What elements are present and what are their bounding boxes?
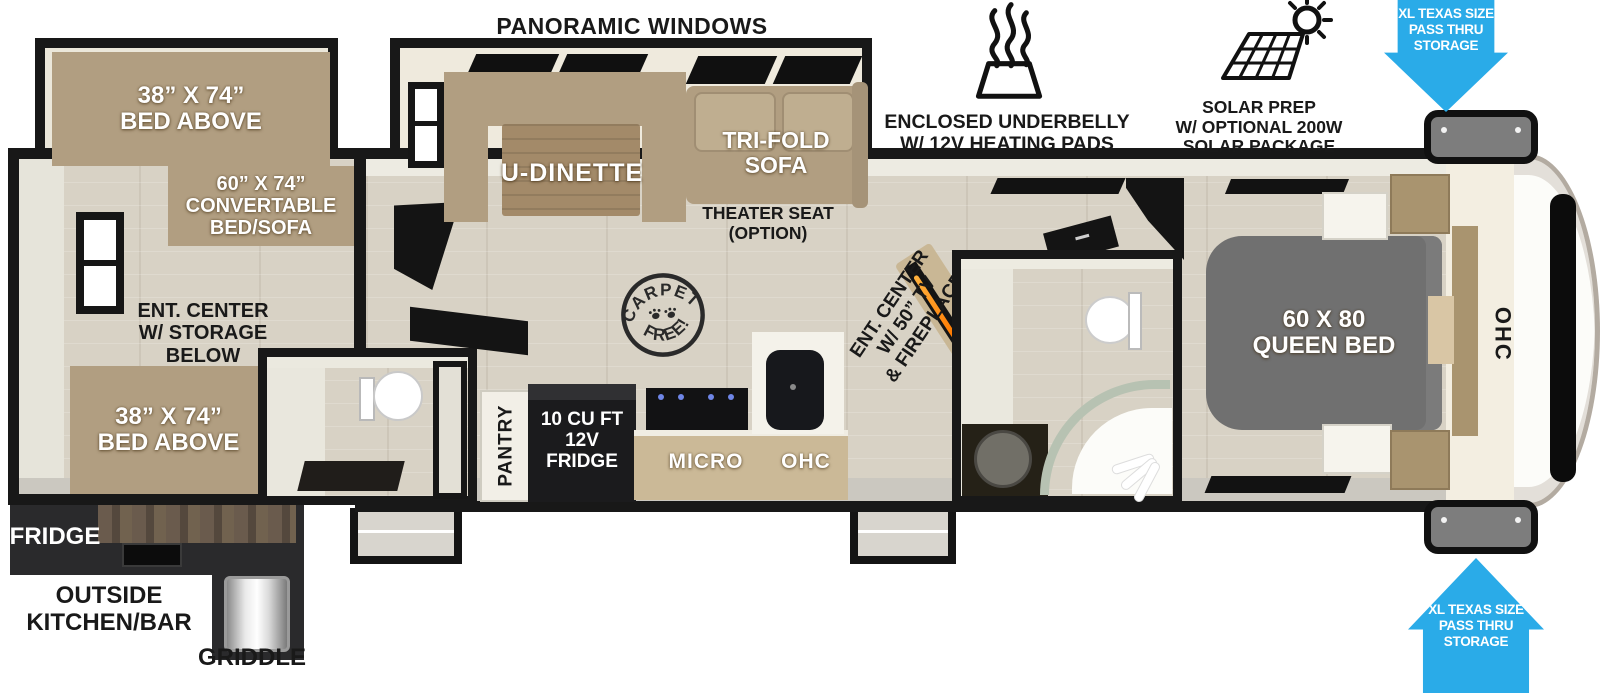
step-edge — [858, 530, 948, 533]
dinette-label: U-DINETTE — [460, 160, 684, 188]
screw-icon — [1441, 127, 1447, 133]
rear-bathroom — [258, 348, 477, 505]
pantry-label: PANTRY — [495, 405, 516, 487]
kitchen-ohc-label: OHC — [764, 450, 848, 473]
fridge-top-face — [528, 384, 636, 400]
panoramic-windows-label: PANORAMIC WINDOWS — [432, 14, 832, 40]
pass-thru-bottom-label: XL TEXAS SIZE PASS THRU STORAGE — [1408, 602, 1544, 650]
solar-label-line2: W/ OPTIONAL 200W — [1150, 118, 1368, 138]
outside-kitchen-label: OUTSIDE KITCHEN/BAR — [2, 583, 216, 637]
griddle-label: GRIDDLE — [194, 645, 310, 672]
pass-thru-bottom-line2: PASS THRU — [1408, 618, 1544, 634]
floorplan-canvas: FRIDGE OUTSIDE KITCHEN/BAR GRIDDLE 38” X… — [0, 0, 1600, 693]
rear-bath-vanity — [297, 461, 404, 491]
cooktop — [646, 388, 748, 434]
entry-step-main — [850, 508, 956, 564]
entry-step-rear — [350, 508, 462, 564]
pass-thru-top-line3: STORAGE — [1384, 38, 1508, 54]
fridge-label-line3: FRIDGE — [528, 452, 636, 473]
underbelly-label: ENCLOSED UNDERBELLY W/ 12V HEATING PADS — [862, 112, 1152, 156]
main-bathroom — [952, 250, 1182, 505]
burner-icon — [678, 394, 684, 400]
queen-bed: 60 X 80 QUEEN BED — [1206, 236, 1442, 430]
pass-thru-top-line2: PASS THRU — [1384, 22, 1508, 38]
rear-ent-center-label: ENT. CENTER W/ STORAGE BELOW — [127, 300, 279, 367]
sofa-label-line1: TRI-FOLD — [692, 128, 860, 153]
burner-icon — [708, 394, 714, 400]
bedside-table — [1428, 296, 1454, 364]
paw-print-icon — [648, 304, 678, 323]
bedroom-cabinet — [1390, 174, 1450, 234]
outside-kitchen-counter — [98, 505, 296, 543]
griddle-appliance — [224, 576, 290, 652]
bedroom-ohc-label: OHC — [1490, 289, 1515, 379]
queen-bed-label-line1: 60 X 80 — [1206, 307, 1442, 333]
bunk-top-label-line2: BED ABOVE — [52, 109, 330, 135]
underbelly-label-line1: ENCLOSED UNDERBELLY — [862, 112, 1152, 134]
nightstand — [1322, 192, 1388, 240]
bed-dresser — [1452, 226, 1478, 436]
outside-kitchen-appliance — [122, 543, 182, 567]
window-mullion — [764, 56, 784, 84]
outside-fridge-label: FRIDGE — [6, 524, 104, 550]
convertible-label-line3: BED/SOFA — [168, 217, 354, 239]
pass-thru-bottom-line1: XL TEXAS SIZE — [1408, 602, 1544, 618]
burner-icon — [728, 394, 734, 400]
pass-thru-arrow-bottom: XL TEXAS SIZE PASS THRU STORAGE — [1408, 558, 1544, 693]
kitchen-fridge-label: 10 CU FT 12V FRIDGE — [528, 410, 636, 473]
step-edge — [358, 530, 454, 533]
fridge-label-line1: 10 CU FT — [528, 410, 636, 431]
solar-label-line1: SOLAR PREP — [1150, 98, 1368, 118]
fridge-label-line2: 12V — [528, 431, 636, 452]
sofa-label: TRI-FOLD SOFA — [692, 128, 860, 179]
convertible-label-line2: CONVERTABLE — [168, 195, 354, 217]
solar-label-line3: SOLAR PACKAGE — [1150, 137, 1368, 157]
window-bar — [84, 260, 116, 266]
micro-label: MICRO — [636, 450, 776, 473]
outside-kitchen-label-line1: OUTSIDE — [2, 583, 216, 610]
bunk-bottom-label-line1: 38” X 74” — [70, 404, 267, 430]
dinette-right-bench — [642, 72, 686, 222]
main-top-window — [990, 178, 1125, 194]
pass-thru-arrow-top: XL TEXAS SIZE PASS THRU STORAGE — [1384, 0, 1508, 112]
pass-thru-door-top — [1424, 110, 1538, 164]
solar-label: SOLAR PREP W/ OPTIONAL 200W SOLAR PACKAG… — [1150, 98, 1368, 157]
rear-ent-label-line2: W/ STORAGE — [127, 322, 279, 344]
theater-label-line1: THEATER SEAT — [688, 204, 848, 224]
solar-panel-icon — [1212, 0, 1338, 100]
rear-ent-label-line3: BELOW — [127, 345, 279, 367]
rear-bunk-top-bed: 38” X 74” BED ABOVE — [52, 52, 330, 166]
bedroom-cabinet — [1390, 430, 1450, 490]
pass-thru-top-line1: XL TEXAS SIZE — [1384, 6, 1508, 22]
outside-kitchen-label-line2: KITCHEN/BAR — [2, 610, 216, 637]
pantry-cabinet: PANTRY — [480, 390, 532, 502]
rear-shower — [433, 361, 467, 499]
stool-mark — [1075, 234, 1089, 241]
rear-wall-window — [76, 212, 124, 314]
slideout-side-window — [408, 82, 444, 168]
screw-icon — [1515, 127, 1521, 133]
kitchen-fridge: 10 CU FT 12V FRIDGE — [528, 384, 636, 502]
nightstand — [1322, 424, 1392, 474]
toilet-tank — [1128, 292, 1142, 350]
pass-thru-bottom-line3: STORAGE — [1408, 634, 1544, 650]
dinette-left-bench — [444, 72, 488, 222]
bath-sink-icon — [974, 430, 1032, 488]
slideout-window-2 — [686, 56, 862, 84]
convertible-bed-sofa: 60” X 74” CONVERTABLE BED/SOFA — [168, 166, 354, 246]
window-bar — [415, 121, 437, 126]
queen-bed-label-line2: QUEEN BED — [1206, 333, 1442, 359]
front-cap-window — [1550, 194, 1576, 482]
pass-thru-top-label: XL TEXAS SIZE PASS THRU STORAGE — [1384, 6, 1508, 54]
underbelly-label-line2: W/ 12V HEATING PADS — [862, 134, 1152, 156]
rear-ent-label-line1: ENT. CENTER — [127, 300, 279, 322]
pass-thru-door-bottom — [1424, 500, 1538, 554]
rear-bunk-bottom-bed: 38” X 74” BED ABOVE — [70, 366, 267, 494]
screw-icon — [1515, 517, 1521, 523]
rear-left-wall-face — [19, 159, 64, 489]
bedroom-window-bottom — [1205, 476, 1352, 493]
heating-pad-icon — [952, 0, 1064, 108]
living-ent-label-text: ENT. CENTER W/ 50” TV & FIREPLACE — [846, 245, 970, 386]
screw-icon — [1441, 517, 1447, 523]
sofa-label-line2: SOFA — [692, 153, 860, 178]
convertible-label-line1: 60” X 74” — [168, 173, 354, 195]
bunk-bottom-label-line2: BED ABOVE — [70, 430, 267, 456]
burner-icon — [658, 394, 664, 400]
toilet-icon — [373, 371, 423, 421]
bunk-top-label-line1: 38” X 74” — [52, 83, 330, 109]
bath-top-face — [961, 259, 1173, 269]
